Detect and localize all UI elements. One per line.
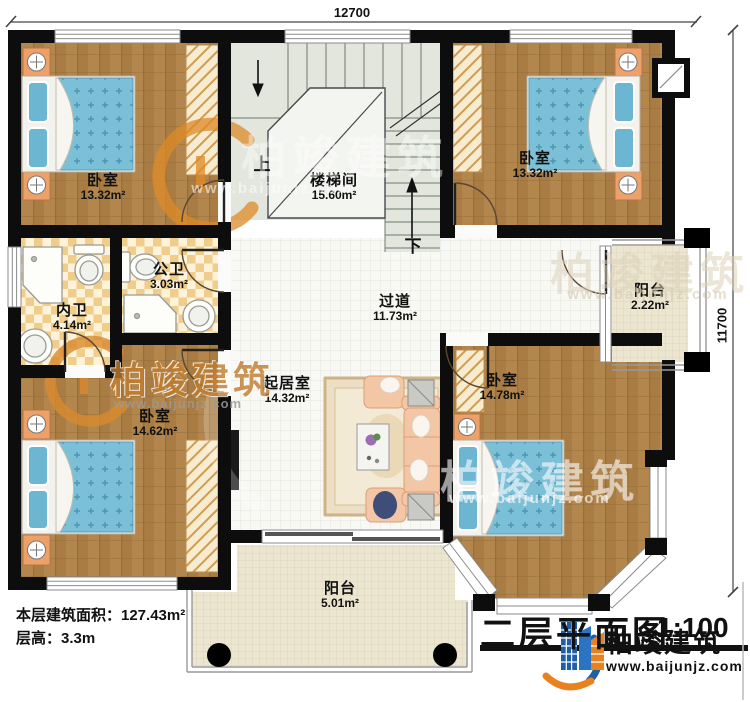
window: [55, 30, 180, 43]
room-name: 卧室: [480, 372, 525, 389]
room-area: 11.73m²: [373, 310, 417, 324]
room-area: 13.32m²: [81, 189, 126, 203]
toilet-tank: [74, 245, 104, 254]
room-label-bedroom-bottom-right: 卧室 14.78m²: [480, 372, 525, 403]
sliding-door: [262, 530, 443, 543]
story-height-text: 层高：3.3m: [16, 627, 95, 648]
round-column: [433, 643, 457, 667]
room-name: 公卫: [150, 261, 188, 278]
brand-name: 柏竣建筑: [606, 621, 722, 660]
watermark-url: www.baijunjz.com: [191, 180, 352, 197]
watermark-brand: 柏竣建筑: [241, 122, 449, 188]
floor-plan-page: 12700 11700 卧室 13.32m² 卧室 13.32m² 楼梯间 15…: [0, 0, 750, 702]
brand-website: www.baijunjz.com: [606, 658, 743, 674]
room-area: 3.03m²: [150, 278, 188, 292]
room-area: 4.14m²: [53, 319, 91, 333]
round-column: [207, 643, 231, 667]
window: [510, 30, 632, 43]
room-label-bedroom-top-left: 卧室 13.32m²: [81, 172, 126, 203]
room-name: 阳台: [321, 580, 359, 597]
room-area: 14.78m²: [480, 389, 525, 403]
room-name: 过道: [373, 293, 417, 310]
right-dimension-label: 11700: [715, 308, 730, 343]
room-label-corridor: 过道 11.73m²: [373, 293, 417, 324]
wardrobe-top-left: [186, 45, 218, 175]
room-area: 5.01m²: [321, 597, 359, 611]
floor-area-text: 本层建筑面积：127.43m²: [16, 604, 185, 625]
room-name: 卧室: [81, 172, 126, 189]
wardrobe-top-right: [453, 45, 482, 172]
person-figure: [373, 491, 397, 519]
room-label-bath-shared: 公卫 3.03m²: [150, 261, 188, 292]
watermark-url: www.baijunjz.com: [449, 490, 610, 507]
room-name: 卧室: [513, 150, 558, 167]
toilet-tank: [121, 252, 130, 282]
room-label-bedroom-bottom-left: 卧室 14.62m²: [133, 408, 178, 439]
square-column: [684, 352, 710, 372]
room-label-bedroom-top-right: 卧室 13.32m²: [513, 150, 558, 181]
room-area: 14.62m²: [133, 425, 178, 439]
room-area: 13.32m²: [513, 167, 558, 181]
watermark-url: www.baijunjz.com: [567, 286, 728, 303]
window: [47, 577, 177, 590]
room-label-balcony-front: 阳台 5.01m²: [321, 580, 359, 611]
window: [8, 247, 21, 307]
room-label-bath-private: 内卫 4.14m²: [53, 302, 91, 333]
watermark-url: www.baijunjz.com: [114, 396, 242, 411]
coffee-table: [357, 424, 389, 470]
stairs-down-label: 下: [405, 232, 422, 257]
room-name: 内卫: [53, 302, 91, 319]
window: [285, 30, 410, 43]
top-dimension-label: 12700: [334, 5, 370, 20]
